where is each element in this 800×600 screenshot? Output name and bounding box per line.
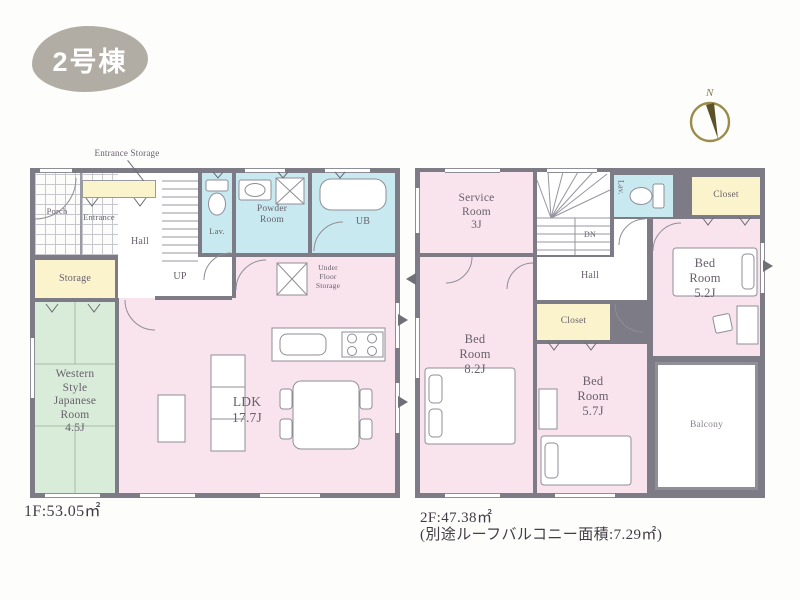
room-bed-mid xyxy=(537,344,647,493)
japanese-room-label: Western Style Japanese Room 4.5J xyxy=(43,368,107,436)
balcony-label: Balcony xyxy=(690,420,723,431)
floorplan-canvas: 2号棟 N Storage xyxy=(0,0,800,600)
building-badge: 2号棟 xyxy=(32,26,148,92)
storage-label: Storage xyxy=(59,273,91,285)
japanese-room-size: 4.5J xyxy=(43,422,107,436)
ldk-name: LDK xyxy=(215,394,279,410)
room-bath-ub xyxy=(312,173,395,253)
entrance-label: Entrance xyxy=(76,212,122,222)
vent-arrow-icon xyxy=(398,396,408,408)
window xyxy=(140,493,195,498)
room-storage: Storage xyxy=(35,260,115,298)
window xyxy=(395,383,400,433)
entrance-storage-label: Entrance Storage xyxy=(72,148,182,159)
bed-right-size: 5.2J xyxy=(673,286,737,301)
bed-mid-size: 5.7J xyxy=(561,404,625,419)
window xyxy=(325,168,370,173)
closet-mid: Closet xyxy=(537,304,610,340)
ldk-size: 17.7J xyxy=(215,410,279,426)
compass-icon: N xyxy=(686,84,736,148)
bed-main-name: Bed Room xyxy=(452,332,498,362)
hall-label-2f: Hall xyxy=(565,270,615,282)
lavatory-label-1f: Lav. xyxy=(198,226,236,236)
floor1-plan: Storage xyxy=(30,168,400,498)
entrance-storage-shelf xyxy=(82,180,156,198)
closet-mid-label: Closet xyxy=(561,316,586,327)
bed-main-size: 8.2J xyxy=(443,362,507,377)
window xyxy=(445,493,500,498)
compass-north-label: N xyxy=(705,87,714,99)
vent-arrow-icon xyxy=(406,273,416,285)
window xyxy=(40,168,72,173)
lavatory-label-2f: Lav. xyxy=(616,180,625,195)
hall-nook-2f xyxy=(614,219,647,257)
wall-segment xyxy=(155,296,232,300)
hall-label-1f: Hall xyxy=(115,236,165,248)
ldk-label: LDK 17.7J xyxy=(215,394,279,426)
stairs-up xyxy=(162,173,198,270)
window xyxy=(555,493,615,498)
bath-ub-label: UB xyxy=(348,216,378,228)
door-arc xyxy=(615,304,643,332)
bed-mid-label: Bed Room 5.7J xyxy=(561,374,625,418)
room-lavatory-1f xyxy=(202,173,232,253)
compass-needle xyxy=(706,103,718,139)
bed-right-label: Bed Room 5.2J xyxy=(673,256,737,300)
window xyxy=(445,168,500,173)
floor2-area-note: (別途ルーフバルコニー面積:7.29㎡) xyxy=(420,523,662,544)
vent-arrow-icon xyxy=(398,314,408,326)
bed-right-name: Bed Room xyxy=(682,256,728,286)
dn-label: DN xyxy=(570,230,610,239)
vent-arrow-icon xyxy=(763,260,773,272)
room-service: Service Room 3J xyxy=(420,172,533,253)
bed-mid-name: Bed Room xyxy=(570,374,616,404)
porch-label: Porch xyxy=(34,206,80,216)
up-label: UP xyxy=(160,271,200,283)
window xyxy=(415,318,420,378)
window xyxy=(415,188,420,233)
powder-room-label: Powder Room xyxy=(248,204,296,226)
under-floor-storage-label: Under Floor Storage xyxy=(310,264,346,291)
closet-top: Closet xyxy=(692,177,760,215)
stairs-down xyxy=(537,172,610,255)
service-room-size: 3J xyxy=(471,219,482,233)
window xyxy=(30,338,35,398)
window xyxy=(260,493,320,498)
window xyxy=(245,168,285,173)
window xyxy=(547,168,597,173)
room-balcony: Balcony xyxy=(655,362,758,490)
building-badge-label: 2号棟 xyxy=(52,40,127,79)
bed-main-label: Bed Room 8.2J xyxy=(443,332,507,376)
floor2-plan: Service Room 3J Closet Closet Balcony xyxy=(415,168,765,498)
service-room-name: Service Room xyxy=(445,192,509,219)
japanese-room-name: Western Style Japanese Room xyxy=(47,368,103,422)
floor1-area-label: 1F:53.05㎡ xyxy=(24,497,101,521)
closet-top-label: Closet xyxy=(713,190,738,201)
